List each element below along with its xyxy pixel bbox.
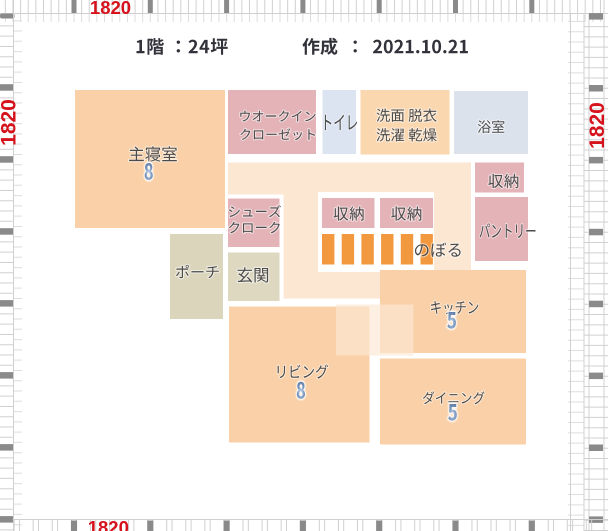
- svg-text:1820: 1820: [0, 99, 21, 146]
- svg-text:1820: 1820: [586, 102, 608, 149]
- svg-text:1820: 1820: [90, 0, 131, 18]
- svg-text:1820: 1820: [88, 517, 129, 531]
